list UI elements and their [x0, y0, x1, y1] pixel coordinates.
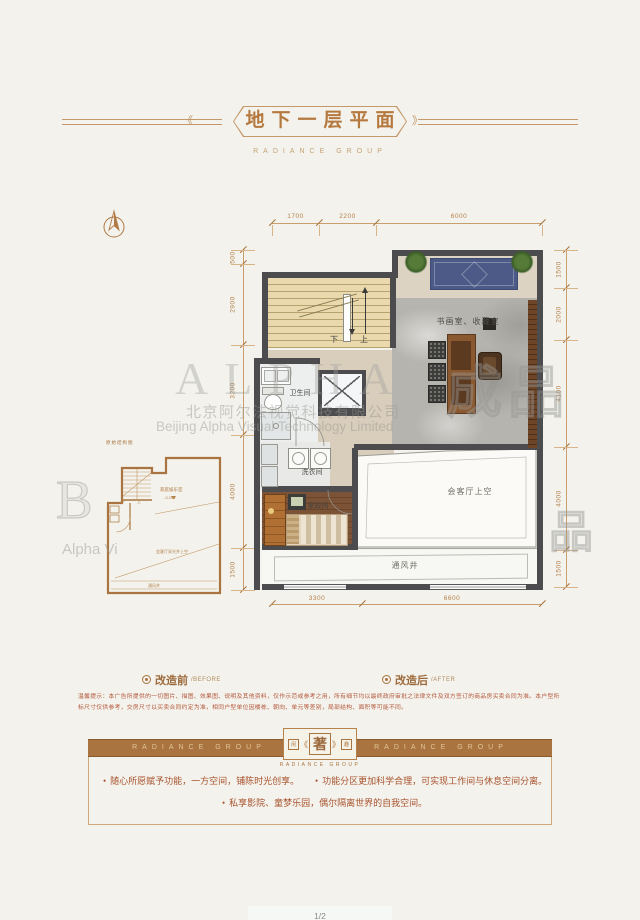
dim-line-bottom: [272, 604, 542, 605]
header-decor-right: 》: [412, 112, 423, 128]
emblem-right-char: 趣: [341, 739, 352, 750]
legend-before-sub: /BEFORE: [191, 677, 221, 683]
dim-line-top: [272, 223, 542, 224]
footer-band-left-text: RADIANCE GROUP: [104, 739, 294, 757]
dim-line-left: [243, 250, 244, 590]
dim-top-2: 2200: [319, 213, 376, 220]
header-decor-left: 《: [182, 112, 193, 128]
page-title: 地下一层平面: [233, 106, 407, 137]
footer-bullet-3: 私享影院、童梦乐园，偶尔隔离世界的自我空间。: [222, 796, 427, 809]
before-level-label: -3.200: [164, 495, 175, 500]
before-stair-down-label: 下: [121, 499, 125, 505]
emblem-left-char: 闲: [288, 739, 299, 750]
header-rule-left: [62, 119, 222, 125]
dim-left-1: 500: [230, 238, 239, 278]
dim-right-4: 4000: [556, 479, 565, 519]
footer-bullet-2: 功能分区更加科学合理，可实现工作间与休息空间分离。: [315, 774, 547, 787]
before-stair-up-label: 上: [137, 499, 141, 505]
before-void-label: 会客厅采光井上空: [156, 549, 188, 555]
before-family-room-label: 家庭娱乐室: [160, 487, 183, 493]
legend-dot: [145, 678, 149, 682]
dim-bottom-1: 3300: [272, 595, 362, 602]
disclaimer-text: 温馨提示：本广告所提供的一切图片、描图、效果图、说明及其他资料，仅作示范或参考之…: [78, 692, 564, 713]
footer-band-right-text: RADIANCE GROUP: [346, 739, 536, 757]
legend-dot: [385, 678, 389, 682]
dim-ext: [554, 447, 578, 448]
header-subtitle: RADIANCE GROUP: [0, 148, 640, 155]
dim-left-4: 4000: [230, 472, 239, 512]
floor-plan-sheet: 《 》 地下一层平面 RADIANCE GROUP 1700 2200 6000…: [0, 0, 640, 920]
dim-left-5: 1500: [230, 550, 239, 590]
dim-right-2: 2000: [556, 295, 565, 335]
page-number: 1/2: [300, 911, 340, 920]
before-vent-label: 通风井: [148, 583, 160, 589]
legend-after-icon: [382, 675, 391, 684]
dim-right-1: 1500: [556, 250, 565, 290]
legend-before-icon: [142, 675, 151, 684]
dim-ext: [319, 225, 320, 236]
emblem-decor-right: 》: [332, 739, 340, 750]
dim-left-3: 3200: [230, 371, 239, 411]
legend-before-label: 改造前: [155, 672, 188, 688]
brand-emblem: 闲 《 著 》 趣: [283, 728, 357, 760]
dim-top-1: 1700: [272, 213, 319, 220]
header-rule-right: [418, 119, 578, 125]
dim-top-3: 6000: [376, 213, 542, 220]
compass-icon: [100, 208, 128, 240]
dim-left-2: 2900: [230, 285, 239, 325]
dim-ext: [231, 590, 255, 591]
dim-ext: [542, 225, 543, 236]
legend-after-sub: /AFTER: [431, 677, 455, 683]
before-plan-caption: 原始结构图: [106, 440, 134, 446]
dim-bottom-2: 6600: [362, 595, 542, 602]
emblem-decor-left: 《: [300, 739, 308, 750]
dim-line-right: [566, 250, 567, 587]
footer-bullet-1: 随心所愿赋予功能，一方空间，铺陈时光创享。: [103, 774, 299, 787]
dim-ext: [554, 340, 578, 341]
dim-right-3: 4100: [556, 374, 565, 414]
title-frame: 地下一层平面: [233, 106, 407, 137]
legend-after-label: 改造后: [395, 672, 428, 688]
dim-ext: [272, 225, 273, 236]
dim-ext: [376, 225, 377, 236]
door-arcs: [250, 250, 550, 590]
dim-right-5: 1500: [556, 549, 565, 589]
emblem-caption: RADIANCE GROUP: [250, 762, 390, 768]
emblem-center-char: 著: [309, 733, 331, 755]
before-plan-drawing: [95, 440, 230, 598]
watermark-partial-glyph: B: [56, 468, 93, 531]
